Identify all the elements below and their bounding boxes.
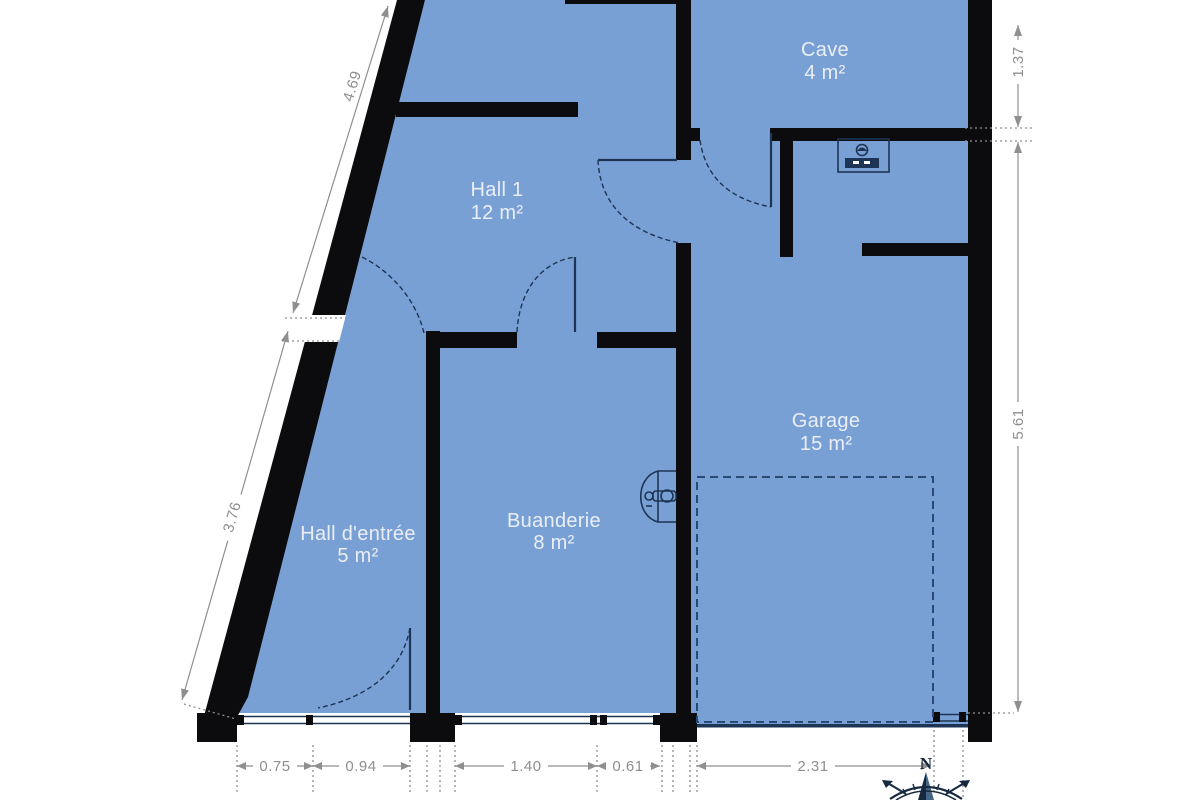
room-area-garage: 15 m² xyxy=(800,433,853,455)
compass-north-label: N xyxy=(920,754,933,773)
dimension-label: 1.37 xyxy=(1010,46,1027,77)
dimension-label: 0.61 xyxy=(612,758,643,775)
dimension-label: 5.61 xyxy=(1010,408,1027,439)
dimension-bottom-row: 0.75 0.94 1.40 0.61 2.31 xyxy=(237,758,930,775)
dimension-right-column: 1.37 5.61 xyxy=(1010,25,1027,712)
wall-right-exterior xyxy=(968,0,992,742)
room-area-hall-entree: 5 m² xyxy=(337,545,378,567)
dimension-label: 0.75 xyxy=(259,758,290,775)
dimension-label: 3.76 xyxy=(220,500,245,535)
wall-buanderie-top xyxy=(597,332,677,348)
room-label-hall1: Hall 1 xyxy=(471,179,524,201)
wall-bottom xyxy=(197,713,237,742)
room-label-cave: Cave xyxy=(801,39,849,61)
wall-cave-bottom xyxy=(688,128,700,141)
wall-bottom xyxy=(660,713,697,742)
dimension-label: 4.69 xyxy=(340,69,365,104)
compass-rose-icon: N xyxy=(882,754,970,800)
wall-niche xyxy=(862,243,968,256)
dimension-label: 1.40 xyxy=(510,758,541,775)
garage-door-line xyxy=(697,724,968,728)
wall-garage-left xyxy=(676,243,691,713)
room-label-buanderie: Buanderie xyxy=(507,510,601,532)
wall-gap xyxy=(301,315,346,342)
room-label-hall-entree: Hall d'entrée xyxy=(300,523,416,545)
room-area-hall1: 12 m² xyxy=(471,202,524,224)
wall-divider xyxy=(426,331,440,742)
dimension-label: 0.94 xyxy=(345,758,376,775)
wall-buanderie-top xyxy=(426,332,517,348)
room-label-garage: Garage xyxy=(792,410,861,432)
dimension-label: 2.31 xyxy=(797,758,828,775)
wall-top-fragment xyxy=(565,0,676,4)
floor-plan: Cave 4 m² Hall 1 12 m² Garage 15 m² Hall… xyxy=(0,0,1200,800)
wall-niche xyxy=(780,140,793,257)
room-area-cave: 4 m² xyxy=(804,62,845,84)
wall-hall1-top xyxy=(396,102,578,117)
floor-plan-page: Cave 4 m² Hall 1 12 m² Garage 15 m² Hall… xyxy=(0,0,1200,800)
room-area-buanderie: 8 m² xyxy=(533,532,574,554)
